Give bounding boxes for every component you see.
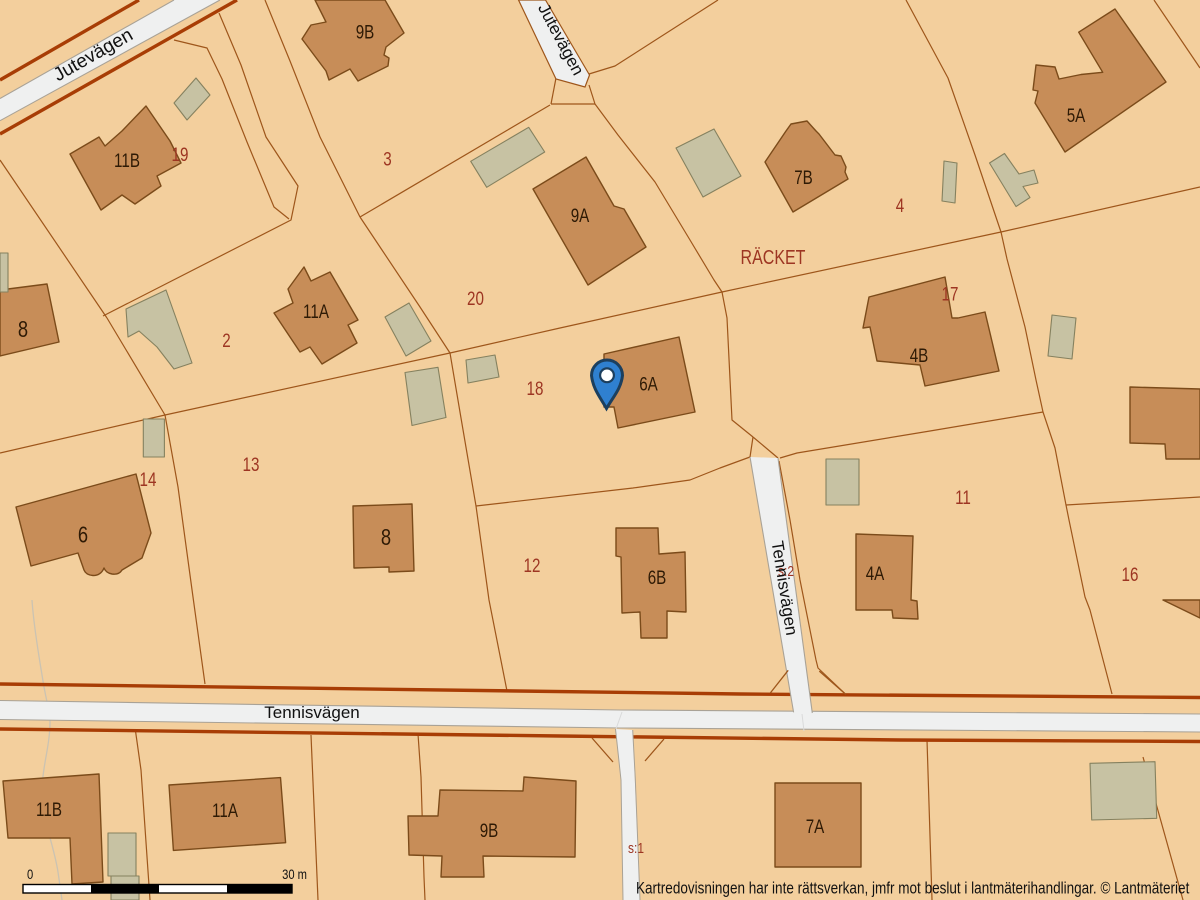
svg-text:20: 20 bbox=[467, 287, 484, 309]
svg-text:11A: 11A bbox=[303, 300, 329, 322]
svg-text:18: 18 bbox=[527, 377, 544, 399]
svg-text:Kartredovisningen har inte rät: Kartredovisningen har inte rättsverkan, … bbox=[636, 879, 1190, 898]
svg-text:6: 6 bbox=[78, 523, 88, 548]
svg-text:13: 13 bbox=[243, 453, 260, 475]
svg-text:9B: 9B bbox=[480, 819, 499, 841]
svg-text:11: 11 bbox=[955, 486, 971, 508]
svg-text:6B: 6B bbox=[648, 566, 667, 588]
svg-text:s:1: s:1 bbox=[628, 840, 644, 857]
svg-text:11A: 11A bbox=[212, 799, 238, 821]
svg-text:4: 4 bbox=[896, 194, 905, 216]
svg-text:3: 3 bbox=[383, 148, 391, 170]
svg-text:16: 16 bbox=[1122, 563, 1139, 585]
svg-text:8: 8 bbox=[381, 525, 391, 550]
svg-text:11B: 11B bbox=[36, 798, 62, 820]
svg-text:9B: 9B bbox=[356, 21, 375, 43]
svg-text:Tennisvägen: Tennisvägen bbox=[264, 703, 359, 722]
svg-text:14: 14 bbox=[140, 468, 157, 490]
svg-text:7A: 7A bbox=[806, 815, 825, 837]
svg-text:11B: 11B bbox=[114, 149, 140, 171]
svg-text:5A: 5A bbox=[1067, 104, 1086, 126]
svg-text:RÄCKET: RÄCKET bbox=[741, 246, 806, 268]
svg-text:8: 8 bbox=[18, 317, 28, 342]
svg-text:2: 2 bbox=[222, 329, 230, 351]
svg-text:9A: 9A bbox=[571, 204, 590, 226]
svg-text:30 m: 30 m bbox=[282, 867, 307, 882]
svg-text:4A: 4A bbox=[866, 562, 885, 584]
svg-text:17: 17 bbox=[942, 283, 959, 305]
svg-text:19: 19 bbox=[172, 143, 189, 165]
svg-text:4B: 4B bbox=[910, 344, 929, 366]
svg-text:0: 0 bbox=[27, 867, 33, 882]
svg-text:7B: 7B bbox=[794, 166, 813, 188]
svg-text:12: 12 bbox=[524, 554, 541, 576]
svg-text:6A: 6A bbox=[639, 373, 658, 395]
